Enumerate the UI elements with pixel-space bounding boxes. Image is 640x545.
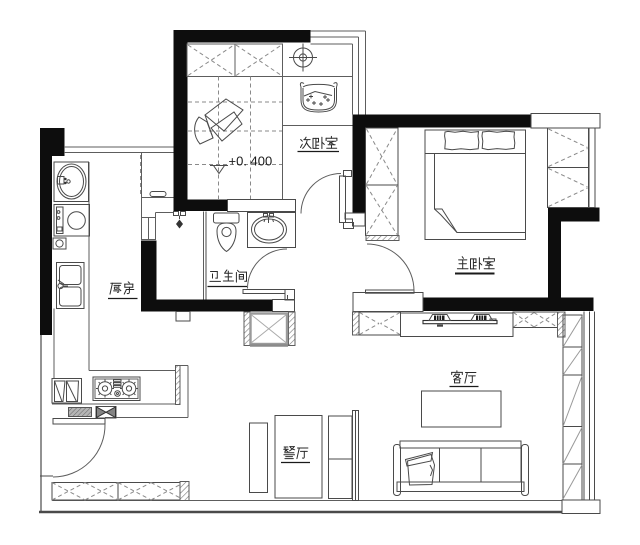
svg-text:+0. 400: +0. 400: [229, 154, 273, 169]
